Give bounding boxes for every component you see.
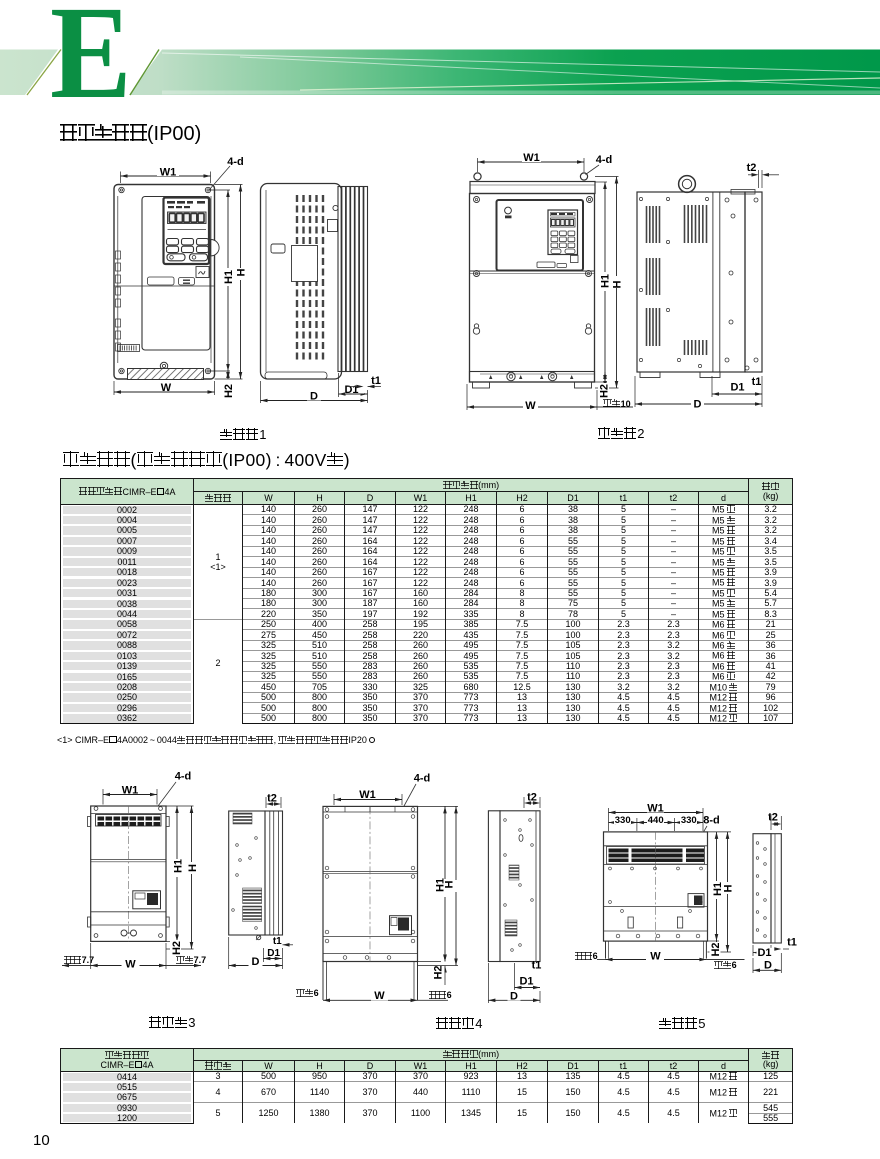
svg-text:H1: H1 xyxy=(173,859,185,873)
svg-text:H2: H2 xyxy=(599,384,611,398)
svg-text:W: W xyxy=(525,400,536,412)
svg-text:D: D xyxy=(694,399,702,411)
svg-text:W1: W1 xyxy=(160,167,177,179)
svg-text:440: 440 xyxy=(648,815,664,826)
svg-text:D1: D1 xyxy=(730,382,744,394)
svg-text:H2: H2 xyxy=(171,941,183,955)
svg-text:4-d: 4-d xyxy=(596,154,613,166)
svg-text:H1: H1 xyxy=(223,270,235,284)
svg-text:8-d: 8-d xyxy=(703,815,720,827)
svg-text:H1: H1 xyxy=(600,274,612,288)
svg-text:t1: t1 xyxy=(787,937,797,949)
svg-text:D: D xyxy=(764,959,772,971)
svg-text:D: D xyxy=(252,956,260,968)
svg-text:W: W xyxy=(161,382,172,394)
svg-text:W: W xyxy=(374,990,385,1002)
svg-text:t1: t1 xyxy=(273,936,282,947)
svg-text:t2: t2 xyxy=(768,812,778,824)
svg-text:W: W xyxy=(125,958,136,970)
svg-text:H: H xyxy=(612,280,624,288)
svg-text:H2: H2 xyxy=(433,965,445,979)
svg-text:D: D xyxy=(310,391,318,403)
svg-text:H: H xyxy=(723,884,735,892)
svg-text:W1: W1 xyxy=(647,803,664,815)
svg-text:t2: t2 xyxy=(747,162,757,174)
svg-text:W1: W1 xyxy=(359,789,376,801)
svg-text:330: 330 xyxy=(615,815,631,826)
svg-text:H2: H2 xyxy=(710,942,722,956)
svg-text:D1: D1 xyxy=(757,947,771,959)
svg-text:W: W xyxy=(650,950,661,962)
svg-text:t2: t2 xyxy=(527,792,537,804)
svg-text:4-d: 4-d xyxy=(227,156,244,168)
svg-text:H: H xyxy=(444,880,456,888)
svg-text:t1: t1 xyxy=(752,376,762,388)
svg-text:t1: t1 xyxy=(532,960,542,972)
svg-text:D: D xyxy=(510,991,518,1003)
svg-text:D1: D1 xyxy=(267,948,280,959)
svg-text:330: 330 xyxy=(681,815,697,826)
svg-text:W1: W1 xyxy=(523,152,540,164)
svg-text:4-d: 4-d xyxy=(414,773,431,785)
svg-text:D1: D1 xyxy=(519,976,533,988)
svg-text:W1: W1 xyxy=(122,785,139,797)
svg-text:H: H xyxy=(187,864,199,872)
svg-text:D1: D1 xyxy=(344,384,358,396)
svg-text:H: H xyxy=(236,268,248,276)
svg-text:4-d: 4-d xyxy=(175,771,192,783)
svg-text:H2: H2 xyxy=(223,384,235,398)
